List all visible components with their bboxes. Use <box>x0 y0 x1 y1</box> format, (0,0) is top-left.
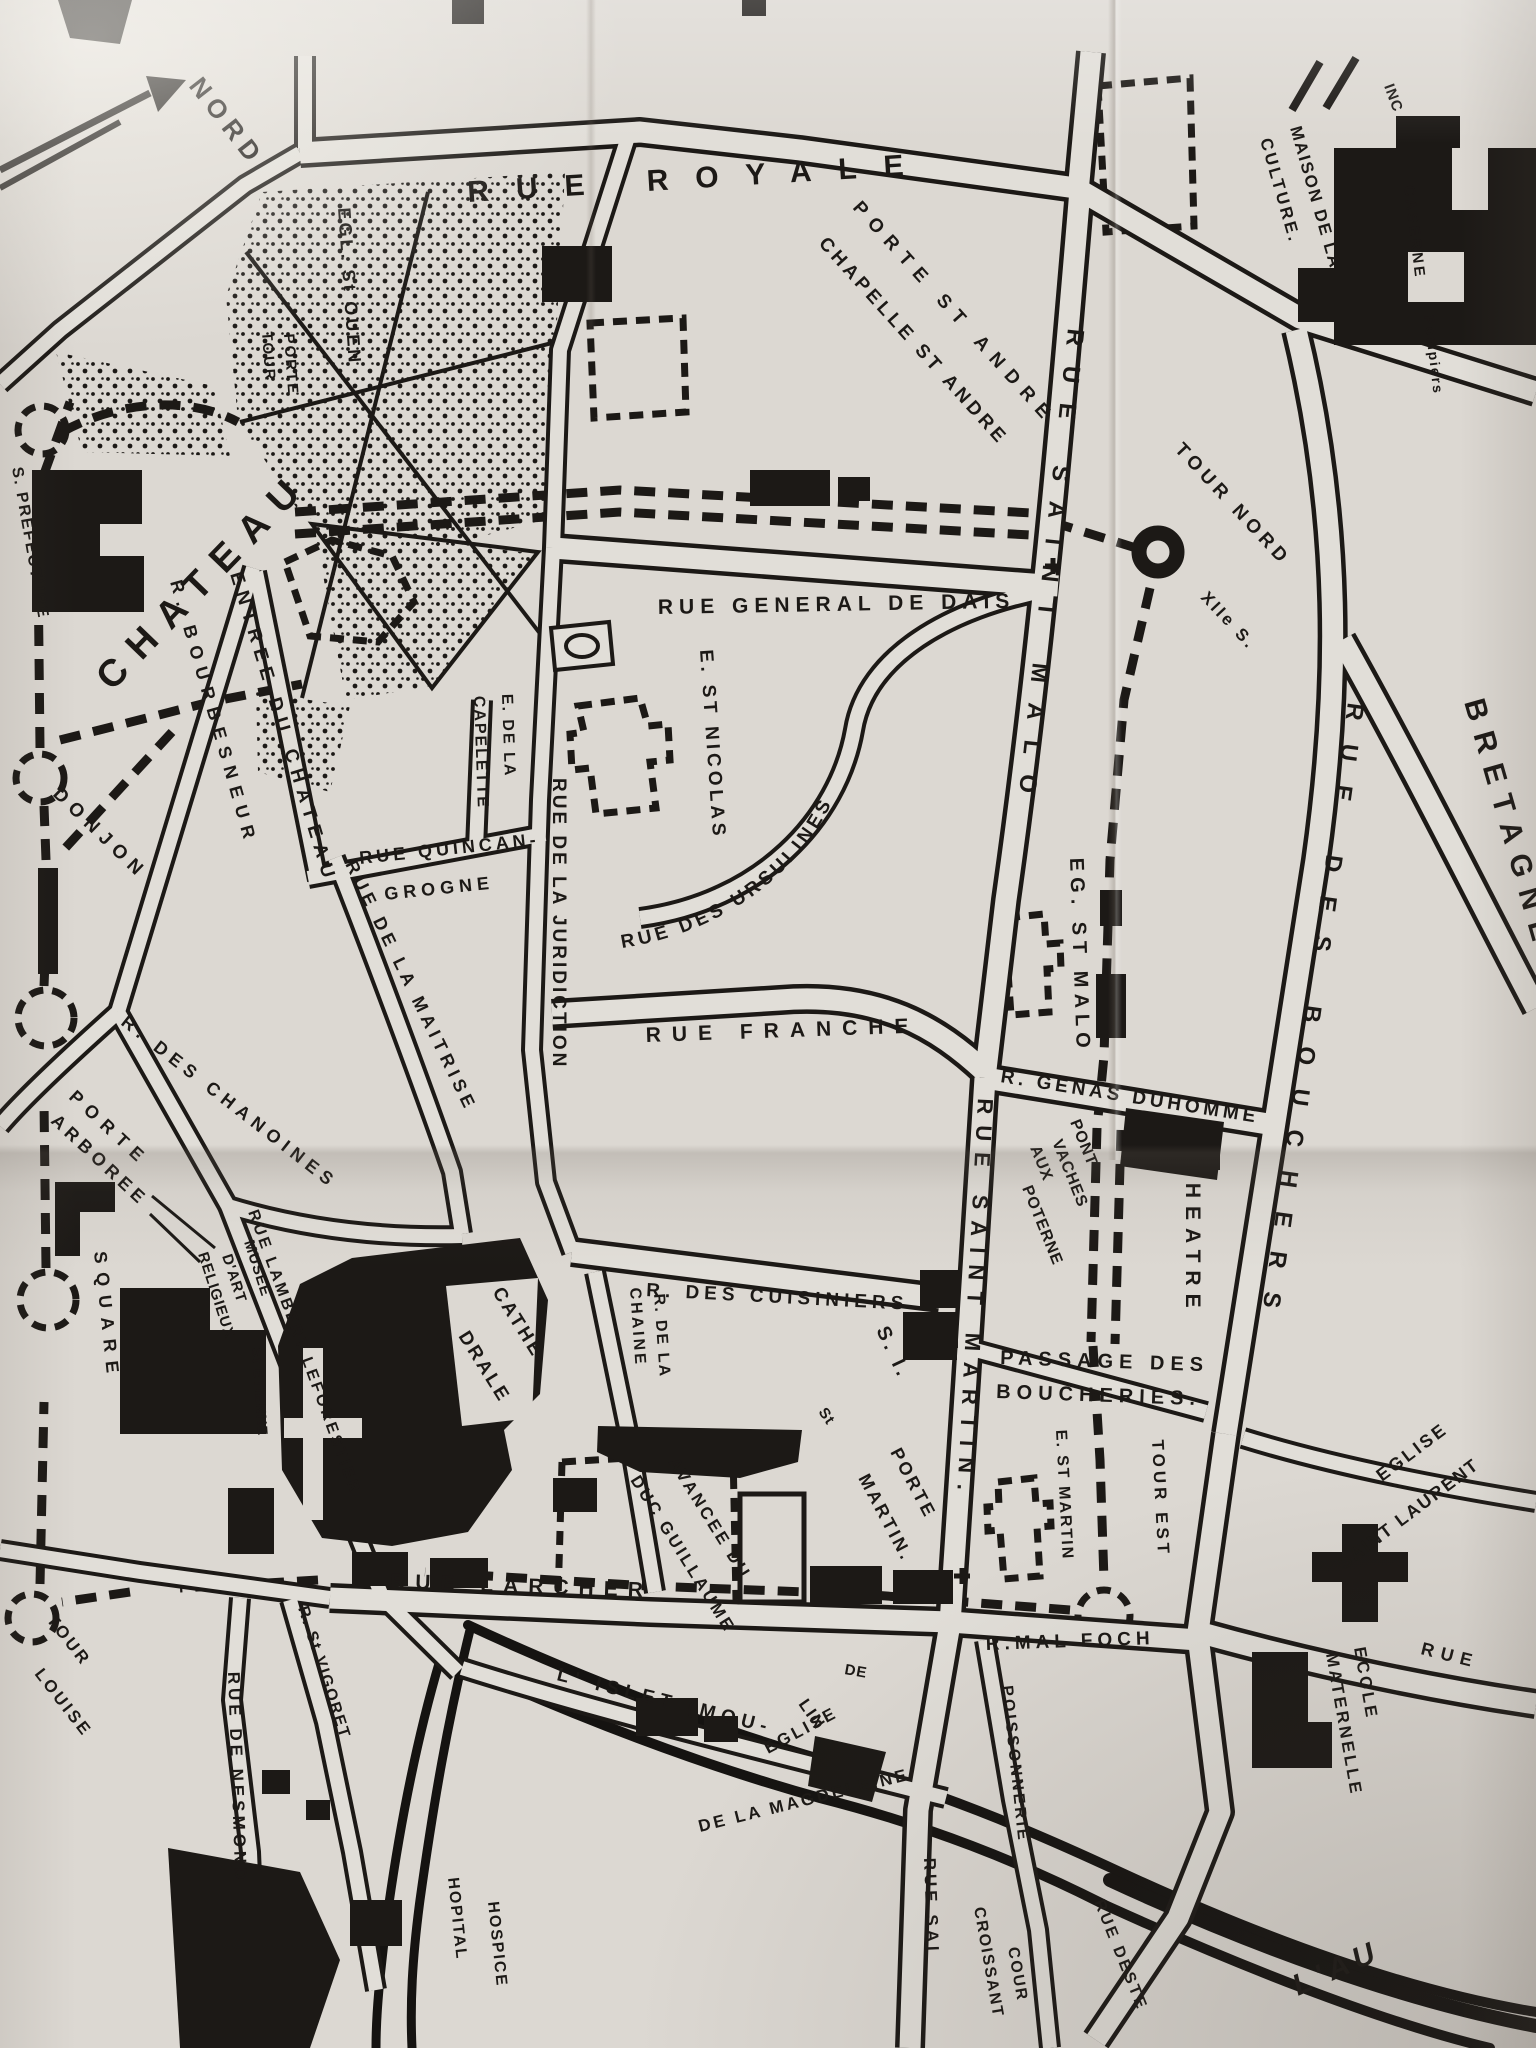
musee-leader-line <box>150 1214 200 1262</box>
wall-gate-block <box>750 470 830 506</box>
wall-tower-icon <box>20 1272 76 1328</box>
label-r-des-chanoines: R. DES CHANOINES <box>118 1011 342 1192</box>
label-tour-louise-2: LOUISE <box>31 1665 96 1741</box>
building <box>262 1770 290 1794</box>
label-grogne: GROGNE <box>383 873 495 904</box>
label-poterne: POTERNE <box>1018 1183 1065 1268</box>
photo-edge-mark <box>452 0 484 24</box>
musee-building <box>120 1288 266 1434</box>
label-rue-de-la-juridiction: RUE DE LA JURIDICTION <box>548 778 569 1069</box>
label-r-mal-foch: R.MAL FOCH <box>985 1628 1155 1655</box>
label-porte-martin-1: PORTE <box>886 1444 940 1521</box>
label-donjon: DONJON <box>49 783 152 884</box>
label-tour-nord: TOUR NORD <box>1170 439 1294 570</box>
label-e-st-martin: E. ST MARTIN <box>1052 1429 1076 1560</box>
wall-segment <box>38 868 58 974</box>
wall-tower <box>1100 890 1122 926</box>
building <box>916 1320 958 1348</box>
label-hospice: HOSPICE <box>484 1901 510 1988</box>
label-inc: INC <box>1380 82 1406 115</box>
wall-gate-block <box>838 477 870 501</box>
chapelle-st-andre-site <box>590 318 686 418</box>
label-tour-porte-1: TOUR <box>258 331 278 382</box>
label-rue-east: RUE <box>1419 1638 1481 1672</box>
building <box>306 1800 330 1820</box>
building <box>350 1900 402 1946</box>
eglise-st-martin-outline <box>987 1478 1051 1579</box>
photo-edge-mark <box>58 0 132 44</box>
hopital-buildings <box>168 1848 340 2048</box>
building <box>55 1182 115 1256</box>
porte-st-martin-block <box>893 1570 953 1604</box>
wall-tower-icon <box>18 990 74 1046</box>
wall-tower <box>1096 974 1126 1038</box>
label-e-de-la: E. DE LA <box>498 694 518 778</box>
town-plan-svg: NORD RUE ROYALE PORTE ST ANDRE CHAPELLE … <box>0 0 1536 2048</box>
label-boucheries: BOUCHERIES. <box>996 1381 1202 1410</box>
label-cour: COUR <box>1004 1946 1030 2003</box>
building <box>542 246 612 302</box>
building <box>1298 268 1340 322</box>
label-de: DE <box>843 1661 868 1682</box>
label-square: SQUARE <box>90 1250 124 1382</box>
label-eg-st-malo: EG. ST MALO <box>1065 857 1094 1054</box>
prefecture-building <box>32 470 144 612</box>
north-arrow <box>0 76 186 188</box>
label-e-st-nicolas: E. ST NICOLAS <box>695 649 729 840</box>
label-hopital: HOPITAL <box>444 1877 470 1961</box>
tour-nord-ring-icon <box>1139 533 1177 571</box>
porte-st-martin-block <box>810 1566 882 1604</box>
photo-edge-mark <box>742 0 766 16</box>
musee-leader-line <box>152 1196 215 1248</box>
label-rue-sai: RUE SAI <box>920 1857 942 1955</box>
label-tour-louise-1: TOUR <box>43 1611 95 1670</box>
building <box>553 1478 597 1512</box>
building <box>920 1270 958 1308</box>
map-photo: NORD RUE ROYALE PORTE ST ANDRE CHAPELLE … <box>0 0 1536 2048</box>
label-de-la-magdeleine: DE LA MAGDELEINE <box>696 1765 911 1836</box>
label-croissant: CROISSANT <box>970 1906 1006 2019</box>
label-xii-s: XIIe S. <box>1197 588 1260 654</box>
fold-mark <box>1292 58 1356 110</box>
building <box>228 1488 274 1554</box>
eglise-st-nicolas-outline <box>570 698 670 814</box>
label-rue-de-nesmond: RUE DE NESMOND <box>224 1671 250 1883</box>
label-st-abbrev: St <box>815 1405 839 1429</box>
label-theatre: THEATRE <box>1181 1162 1204 1316</box>
monument-building <box>551 622 613 670</box>
building <box>1396 116 1460 150</box>
label-nord: NORD <box>183 71 271 172</box>
label-tour-est: TOUR EST <box>1148 1439 1173 1557</box>
label-r-de-la: R. DE LA <box>650 1293 673 1378</box>
